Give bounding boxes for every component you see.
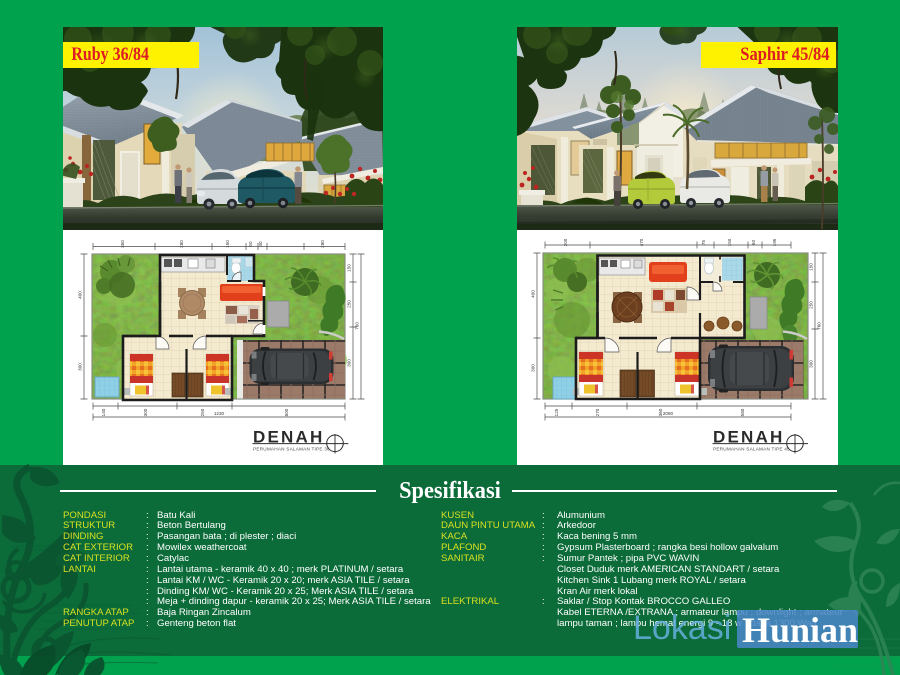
svg-text:470: 470 xyxy=(639,238,644,246)
svg-text:250: 250 xyxy=(809,301,814,309)
svg-text:280: 280 xyxy=(179,240,184,248)
svg-text:580: 580 xyxy=(740,408,745,416)
svg-text:60: 60 xyxy=(751,240,756,246)
svg-text:50: 50 xyxy=(248,241,253,247)
svg-text:270: 270 xyxy=(595,408,600,416)
svg-text:250: 250 xyxy=(200,408,205,416)
svg-text:300: 300 xyxy=(531,364,536,372)
svg-text:350: 350 xyxy=(120,240,125,248)
svg-text:300: 300 xyxy=(809,360,814,368)
svg-text:400: 400 xyxy=(531,290,536,298)
svg-text:PERUMAHAN SALAMAN TIPE 36: PERUMAHAN SALAMAN TIPE 36 xyxy=(253,447,330,452)
svg-text:280: 280 xyxy=(320,240,325,248)
svg-text:150: 150 xyxy=(347,264,352,272)
svg-text:250: 250 xyxy=(347,300,352,308)
svg-text:PERUMAHAN SALAMAN TIPE 45: PERUMAHAN SALAMAN TIPE 45 xyxy=(713,447,790,452)
svg-text:2080: 2080 xyxy=(663,411,674,416)
svg-text:300: 300 xyxy=(78,363,83,371)
svg-text:140: 140 xyxy=(101,408,106,416)
svg-text:40: 40 xyxy=(258,241,263,247)
svg-text:200: 200 xyxy=(563,238,568,246)
svg-text:150: 150 xyxy=(225,240,230,248)
svg-text:1230: 1230 xyxy=(214,411,225,416)
svg-text:600: 600 xyxy=(284,408,289,416)
svg-text:300: 300 xyxy=(143,408,148,416)
svg-text:300: 300 xyxy=(347,359,352,367)
svg-text:150: 150 xyxy=(809,263,814,271)
svg-text:195: 195 xyxy=(772,238,777,246)
svg-text:125: 125 xyxy=(554,408,559,416)
svg-text:75: 75 xyxy=(701,240,706,246)
svg-text:760: 760 xyxy=(817,322,822,330)
svg-text:400: 400 xyxy=(78,291,83,299)
svg-text:760: 760 xyxy=(355,322,360,330)
svg-text:150: 150 xyxy=(727,238,732,246)
